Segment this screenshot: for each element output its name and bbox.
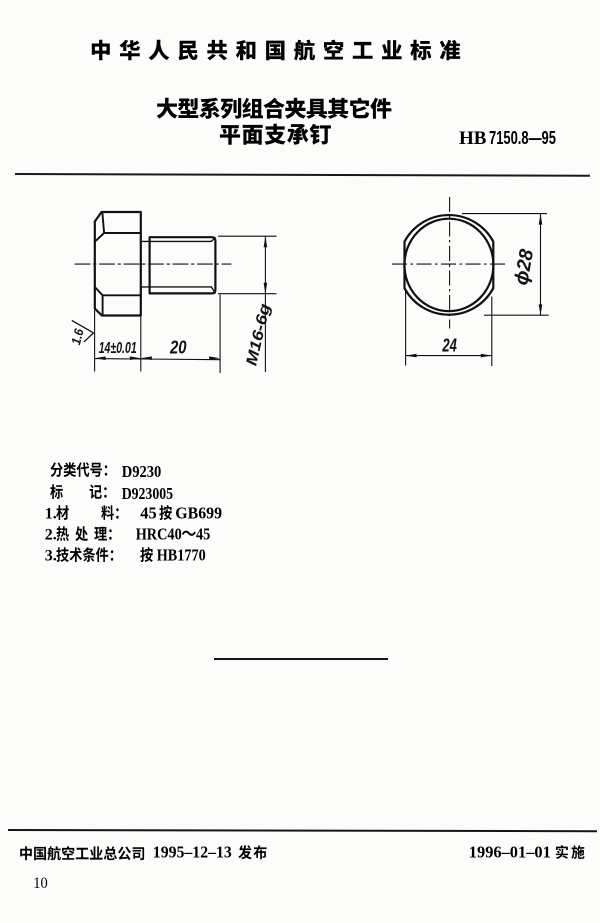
svg-text:D9230: D9230 [122, 462, 162, 481]
svg-text:HB1770: HB1770 [157, 545, 206, 564]
svg-text:2.: 2. [45, 526, 57, 543]
svg-text:1.: 1. [45, 505, 57, 522]
svg-text:1995–12–13: 1995–12–13 [153, 842, 232, 861]
svg-text:D923005: D923005 [122, 484, 173, 503]
svg-text:3.: 3. [45, 547, 57, 564]
svg-text:HRC40～45: HRC40～45 [136, 524, 211, 543]
svg-text:GB699: GB699 [175, 503, 222, 522]
svg-text:1996–01–01: 1996–01–01 [469, 842, 551, 861]
svg-text:10: 10 [33, 875, 48, 892]
svg-text:45: 45 [140, 503, 156, 522]
